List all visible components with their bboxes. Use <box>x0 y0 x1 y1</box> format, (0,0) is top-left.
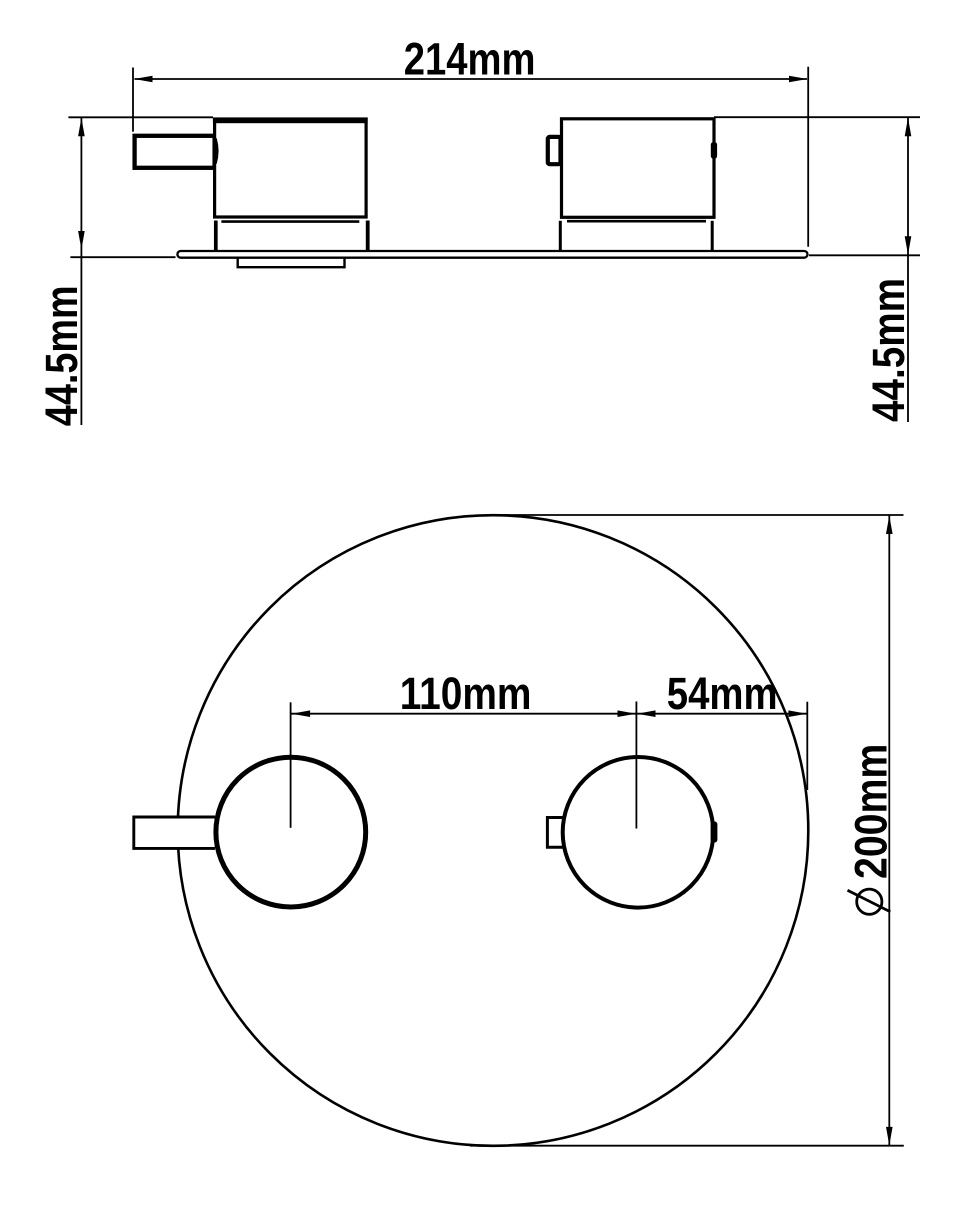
svg-text:54mm: 54mm <box>667 668 778 719</box>
svg-text:44.5mm: 44.5mm <box>36 285 87 426</box>
svg-text:214mm: 214mm <box>404 34 536 85</box>
svg-text:200mm: 200mm <box>846 744 897 879</box>
svg-text:44.5mm: 44.5mm <box>863 278 914 422</box>
svg-text:110mm: 110mm <box>400 668 532 719</box>
